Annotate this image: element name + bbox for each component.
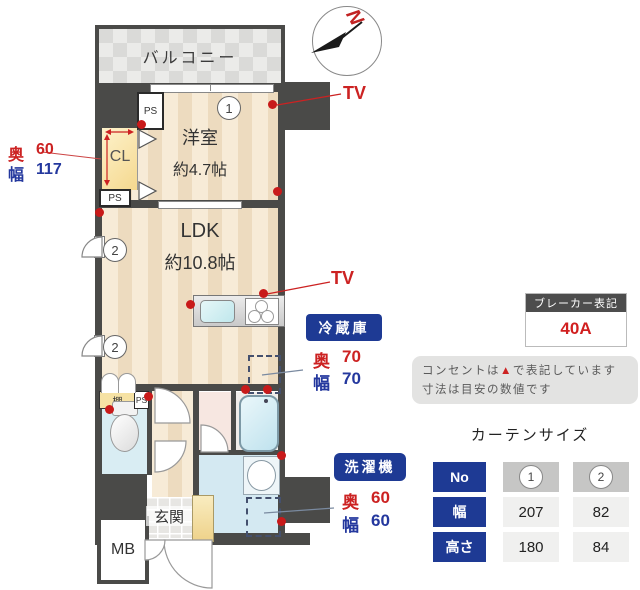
ldk-name: LDK <box>130 219 270 243</box>
western-room-name: 洋室 <box>130 126 270 148</box>
ps-label: PS <box>108 193 121 204</box>
outlet-marker <box>105 405 114 414</box>
hallway-floor <box>152 390 193 497</box>
balcony-window-divider <box>210 84 211 91</box>
tv-label-2: TV <box>331 268 354 289</box>
meter-box-label: MB <box>111 541 135 559</box>
window-2-badge-b: 2 <box>103 335 127 359</box>
toilet-bowl <box>110 414 139 452</box>
note-line-2: 寸法は目安の数値です <box>422 381 638 400</box>
bathtub <box>239 395 279 452</box>
tv-label-1: TV <box>343 83 366 104</box>
washer-width-dim: 幅60 <box>342 511 390 536</box>
outlet-marker-legend: ▲ <box>500 365 513 377</box>
pillar-bottom-right <box>285 477 330 523</box>
outlet-marker <box>241 385 250 394</box>
outlet-marker <box>144 392 153 401</box>
stove-burner-3 <box>261 310 274 323</box>
balcony-wall-right <box>281 25 285 85</box>
breaker-box: ブレーカー表記 40A <box>525 293 627 347</box>
closet-width-value: 117 <box>36 161 62 185</box>
curtain-row-header-no: No <box>433 462 486 492</box>
balcony-wall-left <box>95 25 99 85</box>
bathtub-drain <box>264 399 268 403</box>
floor-plan-page: PS PS PS 棚 MB N <box>0 0 640 590</box>
curtain-height-1: 180 <box>503 532 559 562</box>
western-room-size: 約4.7帖 <box>130 158 270 178</box>
washer-depth-dim: 奥60 <box>342 488 390 513</box>
closet-width-dim: 幅 117 <box>8 161 62 185</box>
entrance-label: 玄関 <box>146 506 192 526</box>
breaker-value: 40A <box>526 312 626 346</box>
curtain-row-header-height: 高さ <box>433 532 486 562</box>
kitchen-sink <box>200 300 235 323</box>
closet-width-label: 幅 <box>8 161 24 185</box>
pipe-space-2: PS <box>99 189 131 207</box>
note-line-1: コンセントは▲で表記しています <box>422 362 638 381</box>
dressing-room-floor <box>199 392 231 451</box>
balcony-wall-top <box>95 25 285 29</box>
window-1-badge: 1 <box>217 96 241 120</box>
outlet-marker <box>186 300 195 309</box>
pillar-top-right <box>283 82 330 130</box>
fridge-title-box: 冷蔵庫 <box>306 314 382 341</box>
curtain-col-header-1: 1 <box>503 462 559 492</box>
washer-outline <box>246 497 281 537</box>
breaker-title: ブレーカー表記 <box>526 294 626 312</box>
curtain-row-header-width: 幅 <box>433 497 486 527</box>
washbasin <box>247 460 276 491</box>
room-sliding-door <box>158 201 242 209</box>
curtain-col-2-badge: 2 <box>589 465 613 489</box>
outlet-marker <box>137 120 146 129</box>
ps-label: PS <box>144 106 157 117</box>
bath-divider-wall <box>231 391 236 452</box>
outlet-marker <box>277 451 286 460</box>
outlet-marker <box>268 100 277 109</box>
note-box: コンセントは▲で表記しています 寸法は目安の数値です <box>412 356 638 404</box>
entrance-door-arc-main <box>164 540 212 588</box>
outlet-marker <box>259 289 268 298</box>
outlet-marker <box>277 517 286 526</box>
balcony-sliding-window <box>150 84 274 93</box>
outlet-marker <box>273 187 282 196</box>
shoe-cabinet <box>192 495 214 542</box>
curtain-width-1: 207 <box>503 497 559 527</box>
balcony-label: バルコニー <box>125 45 255 67</box>
block-top-left <box>102 85 137 128</box>
hall-right-wall <box>193 391 199 497</box>
outlet-marker <box>263 385 272 394</box>
shelf-door-leaf-2 <box>118 373 136 393</box>
stove-burner-2 <box>248 310 261 323</box>
curtain-col-header-2: 2 <box>573 462 629 492</box>
curtain-height-2: 84 <box>573 532 629 562</box>
fridge-width-dim: 幅70 <box>313 369 361 394</box>
ldk-size: 約10.8帖 <box>125 251 275 273</box>
washer-title-box: 洗濯機 <box>334 453 406 481</box>
curtain-col-1-badge: 1 <box>519 465 543 489</box>
curtain-width-2: 82 <box>573 497 629 527</box>
shelf-door-leaf-1 <box>101 373 119 393</box>
window-2-badge-a: 2 <box>103 238 127 262</box>
outlet-marker <box>95 208 104 217</box>
closet-label: CL <box>104 147 136 167</box>
curtain-table-title: カーテンサイズ <box>470 424 590 444</box>
meter-box: MB <box>97 516 149 584</box>
